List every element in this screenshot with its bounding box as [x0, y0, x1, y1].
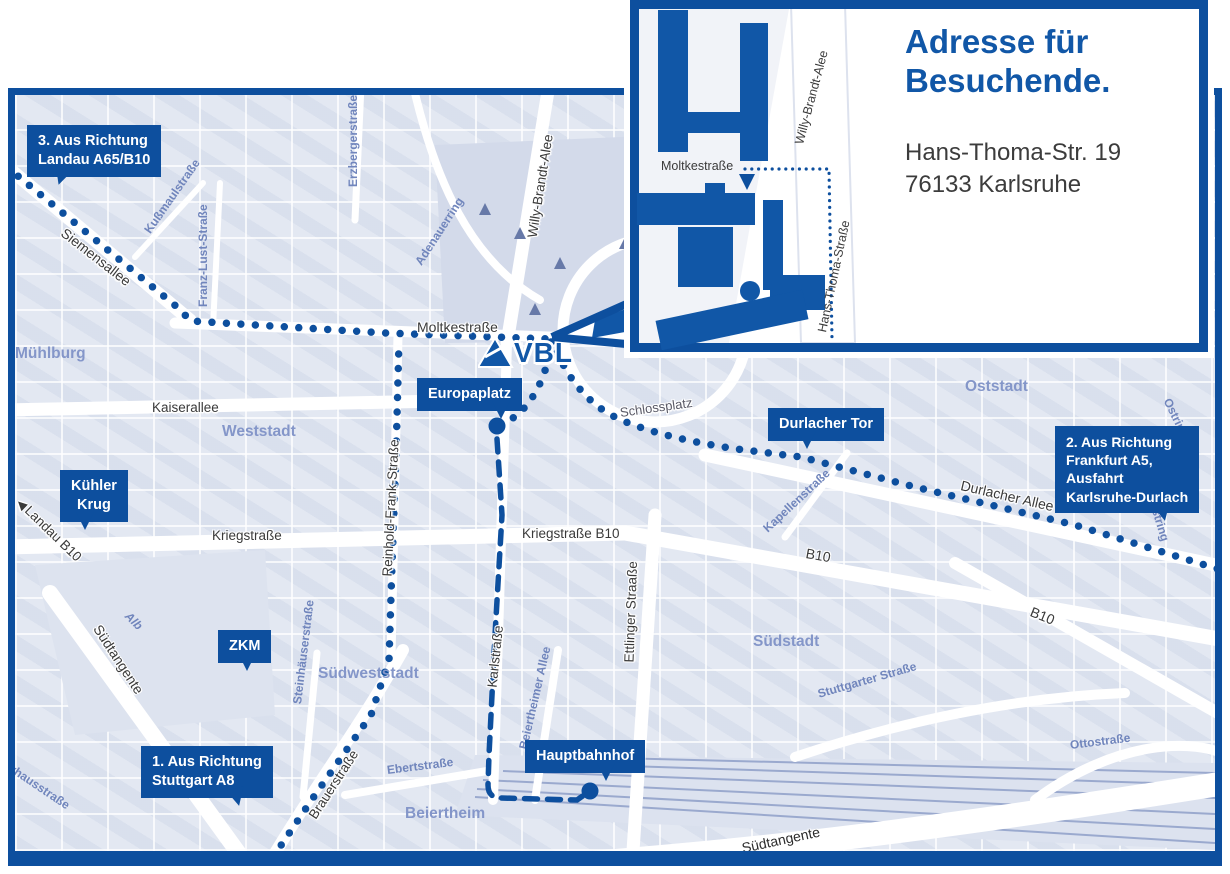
- road-kaiserallee: [15, 401, 445, 410]
- vbl-directions-map: Siemensallee Kußmaulstraße Franz-Lust-St…: [0, 0, 1230, 874]
- area-label-muehlburg: Mühlburg: [15, 345, 86, 363]
- area-label-weststadt: Weststadt: [222, 423, 296, 441]
- badge-direction-frankfurt: 2. Aus Richtung Frankfurt A5, Ausfahrt K…: [1055, 426, 1199, 513]
- street-label-kriegstrasse: Kriegstraße: [212, 528, 282, 543]
- badge-zkm: ZKM: [218, 630, 271, 663]
- badge-direction-landau: 3. Aus Richtung Landau A65/B10: [27, 125, 161, 177]
- street-label-franz-lust-strasse: Franz-Lust-Straße: [196, 204, 210, 307]
- inset-street-label-moltkestrasse: Moltkestraße: [661, 159, 733, 173]
- hauptbahnhof-dot: [582, 783, 599, 800]
- area-label-suedweststadt: Südweststadt: [318, 665, 419, 683]
- inset-building: [740, 23, 768, 161]
- road-franz-lust-strasse: [213, 183, 220, 327]
- badge-durlacher-tor: Durlacher Tor: [768, 408, 884, 441]
- visitor-address-text: Hans-Thoma-Str. 19 76133 Karlsruhe: [905, 137, 1121, 202]
- area-label-suedstadt: Südstadt: [753, 633, 819, 651]
- inset-building: [705, 183, 725, 195]
- inset-building-round: [740, 281, 760, 301]
- street-label-moltkestrasse: Moltkestraße: [417, 319, 498, 335]
- badge-kuehler-krug: Kühler Krug: [60, 470, 128, 522]
- street-label-kriegstrasse-b10: Kriegstraße B10: [522, 526, 620, 541]
- inset-building: [678, 227, 733, 287]
- inset-building: [658, 112, 768, 133]
- area-label-beiertheim: Beiertheim: [405, 805, 485, 823]
- street-label-kaiserallee: Kaiserallee: [152, 400, 219, 415]
- inset-building: [637, 193, 755, 225]
- street-label-erzbergerstrasse: Erzbergerstraße: [346, 95, 360, 187]
- badge-europaplatz: Europaplatz: [417, 378, 522, 411]
- visitor-address-title: Adresse für Besuchende.: [905, 23, 1110, 101]
- visitor-address-inset: Moltkestraße Willy-Brandt-Alee Hans-Thom…: [630, 0, 1208, 352]
- badge-hauptbahnhof: Hauptbahnhof: [525, 740, 645, 773]
- badge-direction-stuttgart: 1. Aus Richtung Stuttgart A8: [141, 746, 273, 798]
- area-label-oststadt: Oststadt: [965, 378, 1028, 396]
- vbl-logo-triangle-icon: [478, 336, 514, 370]
